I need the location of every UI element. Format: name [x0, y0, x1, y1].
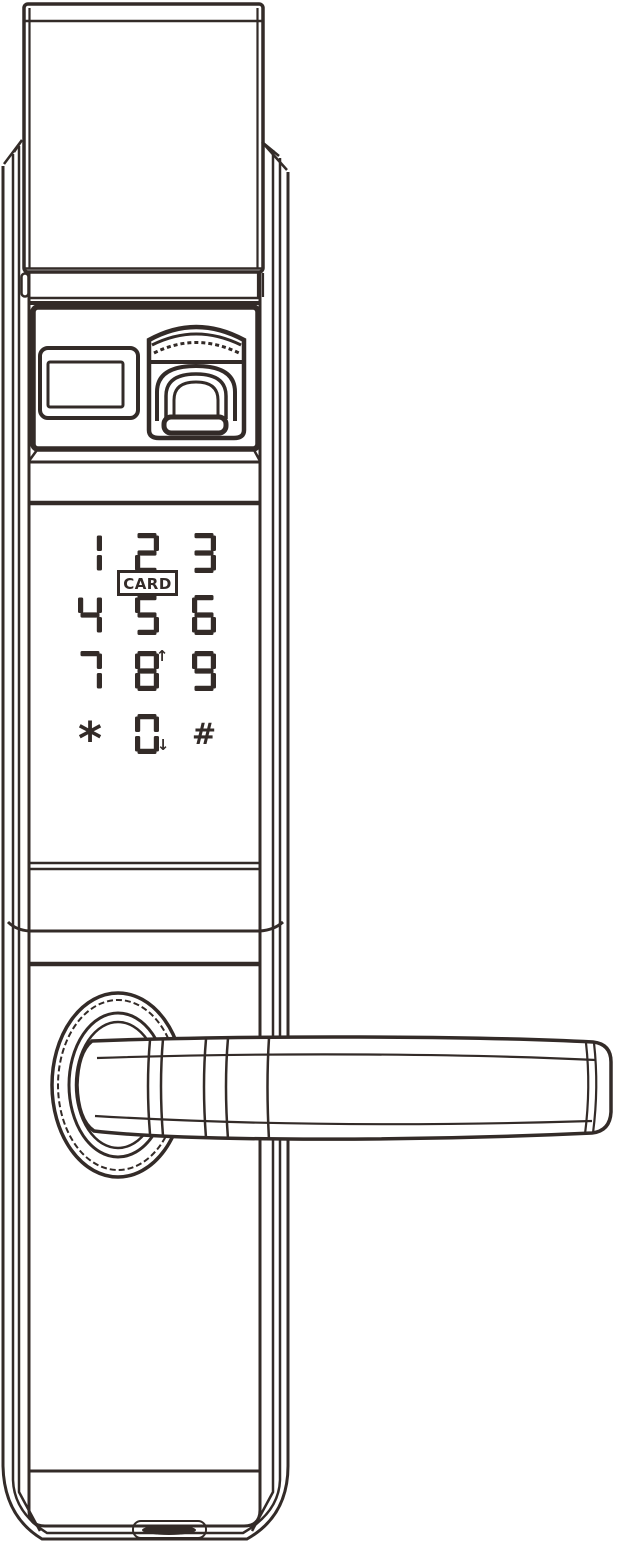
segment-a	[195, 533, 214, 538]
key-0-down-arrow: ↓	[157, 736, 170, 754]
door-lock-drawing: *# CARD ↑ ↓	[0, 0, 617, 1541]
body-inner-shell-right	[252, 150, 273, 1531]
mid-body-bands	[8, 922, 283, 964]
segment-f	[192, 598, 197, 614]
fingerprint-scanner	[149, 327, 244, 438]
segment-f	[192, 654, 197, 670]
cover-face-edges	[30, 8, 258, 268]
segment-b	[211, 536, 216, 552]
segment-b	[211, 654, 216, 670]
sensor-panel	[29, 307, 260, 462]
cover-hinge-knuckle	[22, 274, 29, 297]
key-3	[195, 533, 217, 573]
segment-d	[138, 630, 157, 635]
segment-b	[97, 654, 102, 670]
segment-c	[97, 617, 102, 633]
key-0	[135, 714, 159, 754]
cover-outline	[24, 4, 263, 272]
bottom-port-opening	[142, 1525, 196, 1535]
card-reader-window	[40, 348, 138, 418]
segment-f	[135, 654, 140, 670]
segment-b	[154, 536, 159, 552]
card-key-label: CARD	[123, 575, 172, 593]
key-9	[192, 651, 216, 691]
finger-arch-inner	[174, 382, 218, 417]
keypad-panel: *# CARD ↑ ↓	[29, 503, 260, 869]
key-asterisk: *	[78, 712, 102, 766]
segment-g	[195, 612, 214, 617]
segment-e	[135, 673, 140, 689]
segment-d	[195, 568, 214, 573]
segment-g	[138, 550, 157, 555]
key-6	[192, 595, 216, 635]
key-2	[135, 533, 159, 573]
segment-e	[135, 555, 140, 571]
shoulder-chamfer-right	[262, 142, 287, 170]
segment-g	[81, 612, 100, 617]
key-8-up-arrow: ↑	[156, 647, 169, 665]
keypad-keys: *#	[78, 533, 216, 766]
segment-g	[138, 612, 157, 617]
front-face-outline	[29, 272, 260, 1526]
segment-a	[81, 651, 100, 656]
segment-f	[78, 598, 83, 614]
segment-e	[135, 736, 140, 752]
lever-handle	[77, 1037, 611, 1140]
door-lock-svg: *# CARD ↑ ↓	[0, 0, 617, 1541]
top-cover	[22, 4, 264, 303]
segment-a	[138, 651, 157, 656]
key-4	[78, 598, 102, 633]
segment-a	[195, 595, 214, 600]
card-window-inner	[48, 362, 123, 407]
segment-e	[192, 617, 197, 633]
segment-g	[138, 668, 157, 673]
key-5	[135, 595, 159, 635]
lock-front-face	[29, 272, 260, 1526]
segment-b	[154, 717, 159, 733]
segment-a	[138, 714, 157, 719]
segment-b	[97, 536, 102, 552]
segment-d	[138, 686, 157, 691]
fingerprint-bottom-bar	[164, 417, 226, 433]
segment-f	[135, 717, 140, 733]
segment-d	[195, 686, 214, 691]
segment-a	[195, 651, 214, 656]
segment-g	[195, 550, 214, 555]
segment-g	[195, 668, 214, 673]
card-key: CARD	[119, 572, 177, 595]
segment-b	[97, 598, 102, 614]
segment-c	[97, 673, 102, 689]
segment-f	[135, 598, 140, 614]
segment-a	[138, 533, 157, 538]
bottom-detail	[133, 1521, 206, 1538]
key-7	[81, 651, 103, 689]
segment-d	[138, 749, 157, 754]
segment-d	[195, 630, 214, 635]
fingerprint-top-arc-2	[154, 343, 239, 354]
segment-c	[97, 555, 102, 571]
mid-band-line-upper	[8, 922, 283, 931]
key-1	[97, 536, 102, 571]
key-hash: #	[192, 717, 216, 751]
